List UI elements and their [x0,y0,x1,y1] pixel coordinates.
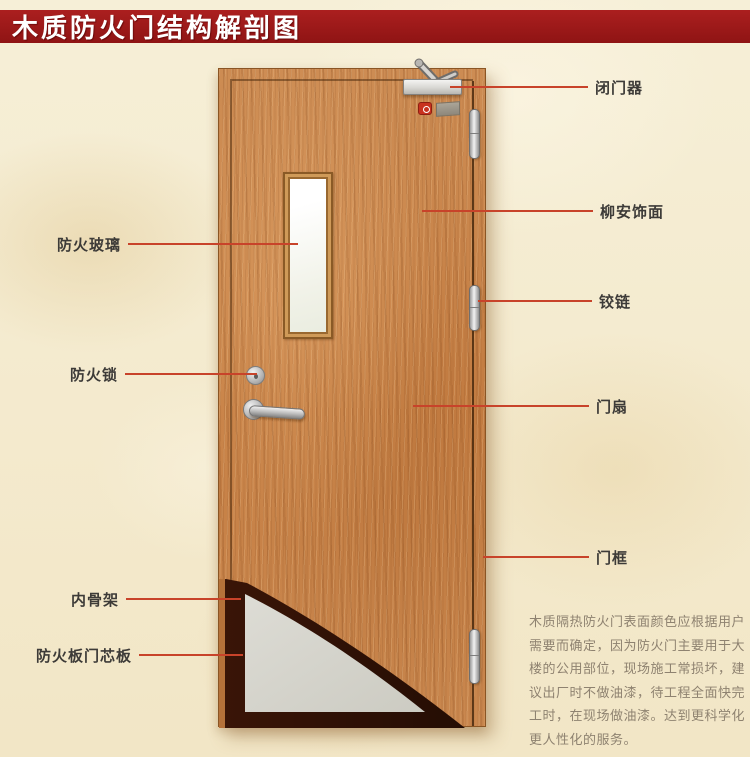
callout-label: 闭门器 [595,77,643,98]
callout-fire-glass: 防火玻璃 [57,235,298,253]
callout-line [413,405,589,407]
callout-label: 防火锁 [70,364,118,385]
page-title: 木质防火门结构解剖图 [0,8,302,45]
metal-label-plate [436,101,460,117]
callout-line [478,300,592,302]
cutaway-section [219,576,469,728]
description-text: 木质隔热防火门表面颜色应根据用户 需要而确定，因为防火门主要用于大 楼的公用部位… [529,611,741,752]
callout-label: 防火玻璃 [57,234,121,255]
callout-label: 柳安饰面 [600,201,664,222]
red-indicator-icon [418,102,432,115]
callout-line [126,598,241,600]
description-line: 工时，在现场做油漆。达到更科学化 [529,705,741,729]
description-line: 更人性化的服务。 [529,729,741,753]
callout-core-board: 防火板门芯板 [36,646,243,664]
callout-label: 门框 [596,547,628,568]
description-line: 楼的公用部位，现场施工常损坏，建 [529,658,741,682]
fire-glass-window [283,172,333,339]
callout-fire-lock: 防火锁 [70,365,257,383]
description-line: 议出厂时不做油漆，待工程全面快完 [529,682,741,706]
callout-veneer: 柳安饰面 [422,202,664,220]
callout-door-frame: 门框 [483,548,628,566]
description-line: 木质隔热防火门表面颜色应根据用户 [529,611,741,635]
callout-line [125,373,257,375]
hinge-top [469,109,480,159]
callout-line [139,654,243,656]
hinge-bottom [469,629,480,684]
callout-line [422,210,593,212]
callout-line [128,243,298,245]
callout-label: 门扇 [596,396,628,417]
core-board-shape [245,594,425,712]
description-line: 需要而确定，因为防火门主要用于大 [529,635,741,659]
callout-inner-skeleton: 内骨架 [71,590,241,608]
callout-line [450,86,588,88]
callout-label: 铰链 [599,291,631,312]
callout-door-leaf: 门扇 [413,397,628,415]
callout-label: 内骨架 [71,589,119,610]
callout-door-closer: 闭门器 [450,78,643,96]
callout-label: 防火板门芯板 [36,645,132,666]
title-banner: 木质防火门结构解剖图 [0,10,750,43]
callout-hinge: 铰链 [478,292,631,310]
callout-line [483,556,589,558]
diagram-canvas: 木质防火门结构解剖图 [0,0,750,757]
